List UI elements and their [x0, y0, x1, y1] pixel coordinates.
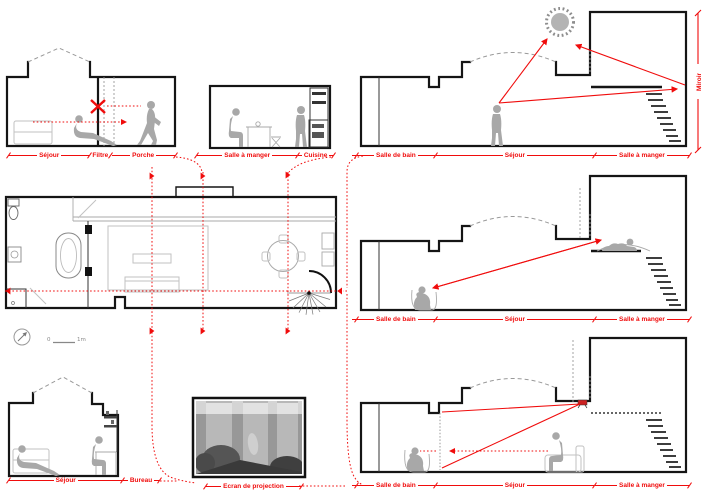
- label-salle-a-manger: Salle à manger: [617, 481, 667, 490]
- floor-plan: 0 1m: [6, 187, 336, 345]
- section-long-sun-mirror: Miroir: [361, 9, 703, 154]
- label-salle-a-manger: Salle à manger: [222, 151, 272, 160]
- section-salle-a-manger-cuisine: [210, 86, 330, 148]
- label-salle-de-bain: Salle de bain: [374, 315, 418, 324]
- label-porche: Porche: [130, 151, 156, 160]
- person-at-desk: [92, 436, 106, 475]
- person-lying: [602, 239, 637, 251]
- dining-table: [246, 122, 281, 147]
- cut-line-1-leader: [152, 332, 196, 483]
- person-cooking: [295, 106, 307, 147]
- person-reclining: [74, 115, 117, 146]
- architecture-diagram: Miroir: [0, 0, 707, 502]
- person-standing: [491, 105, 503, 146]
- mirror-dimension: Miroir: [695, 10, 703, 153]
- label-cuisine: Cuisine: [302, 151, 329, 160]
- dim-row-top-left: Séjour Filtre Porche: [8, 151, 176, 160]
- label-sejour: Séjour: [503, 481, 527, 490]
- sofa: [14, 121, 52, 144]
- scale-zero: 0: [47, 337, 51, 343]
- filter-screen-dashed: [104, 77, 114, 146]
- mutual-sightline-return: [433, 240, 601, 288]
- reflected-sightline: [576, 45, 685, 85]
- label-sejour: Séjour: [503, 315, 527, 324]
- sun-icon: [547, 9, 574, 36]
- scale-one-meter: 1m: [77, 337, 86, 343]
- person-reclining: [17, 445, 60, 476]
- label-salle-de-bain: Salle de bain: [374, 481, 418, 490]
- dim-row-right-top: Salle de bain Séjour Salle à manger: [352, 151, 690, 160]
- label-salle-a-manger: Salle à manger: [617, 151, 667, 160]
- dim-row-right-middle: Salle de bain Séjour Salle à manger: [352, 315, 690, 324]
- scale-bar: 0 1m: [47, 337, 86, 343]
- dim-row-top-middle: Salle à manger Cuisine: [196, 151, 334, 160]
- section-sejour-bureau: [9, 377, 118, 476]
- label-bureau: Bureau: [128, 476, 154, 485]
- section-long-projection: [361, 338, 686, 472]
- dining-table-plan: [262, 235, 305, 278]
- person-bathing: [407, 447, 424, 471]
- bathtub-plan: [56, 233, 81, 278]
- kitchen-shelves: [309, 88, 328, 147]
- section-long-bain-mezzanine: [361, 176, 686, 310]
- porch-bay: [176, 187, 233, 197]
- diagram-drawing: Miroir: [0, 0, 707, 502]
- living-furniture: [108, 226, 208, 292]
- person-walking: [137, 101, 161, 145]
- sightline-to-sun: [499, 39, 547, 103]
- label-sejour: Séjour: [54, 476, 78, 485]
- label-ecran-projection: Ecran de projection: [221, 482, 286, 491]
- label-sejour: Séjour: [37, 151, 61, 160]
- toilet-plan: [8, 199, 19, 220]
- person-bathing: [414, 286, 431, 310]
- sink-plan: [8, 247, 21, 262]
- label-salle-de-bain: Salle de bain: [374, 151, 418, 160]
- section-sejour-filtre-porche: [7, 48, 175, 146]
- label-sejour: Séjour: [503, 151, 527, 160]
- label-filtre: Filtre: [90, 151, 110, 160]
- north-arrow: [14, 329, 30, 345]
- section-cut-lines: [5, 156, 363, 486]
- mirror-label: Miroir: [696, 73, 703, 92]
- person-sitting-table: [229, 108, 243, 147]
- dim-row-projection: Ecran de projection: [205, 482, 302, 491]
- dim-row-bottom-left: Séjour Bureau: [8, 476, 160, 485]
- dim-row-right-bottom: Salle de bain Séjour Salle à manger: [352, 481, 690, 490]
- label-salle-a-manger: Salle à manger: [617, 315, 667, 324]
- person-watching: [549, 432, 563, 471]
- projection-photo: [193, 398, 305, 478]
